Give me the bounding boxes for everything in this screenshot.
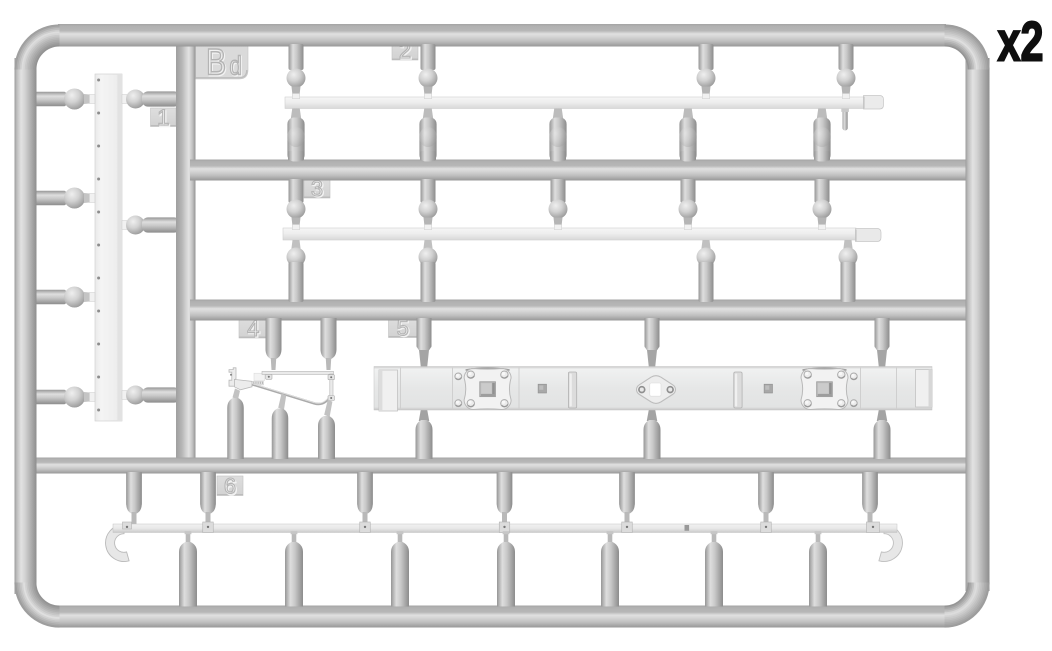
svg-text:d: d (230, 52, 242, 81)
svg-text:B: B (206, 42, 226, 84)
svg-text:6: 6 (224, 474, 236, 499)
svg-text:x2: x2 (998, 10, 1044, 73)
svg-text:1: 1 (157, 105, 169, 130)
